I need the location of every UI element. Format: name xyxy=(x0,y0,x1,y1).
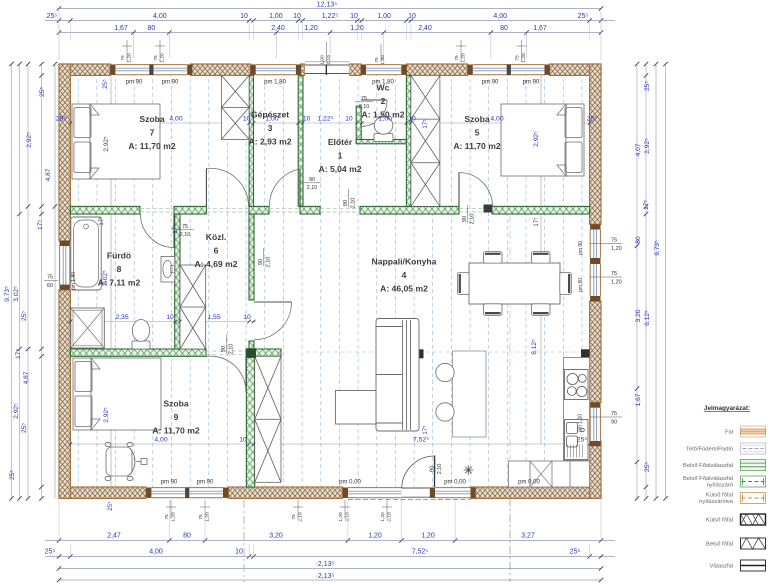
svg-text:2,92⁵: 2,92⁵ xyxy=(644,138,651,154)
svg-text:2,10: 2,10 xyxy=(351,198,357,209)
svg-text:A: 2,93 m2: A: 2,93 m2 xyxy=(249,137,292,147)
svg-text:A: 4,69 m2: A: 4,69 m2 xyxy=(195,259,238,269)
svg-text:25⁵: 25⁵ xyxy=(107,501,114,511)
svg-text:1,00: 1,00 xyxy=(320,55,326,65)
svg-text:1,55: 1,55 xyxy=(207,314,220,321)
svg-text:3,20: 3,20 xyxy=(635,309,642,322)
svg-text:25⁵: 25⁵ xyxy=(21,311,28,321)
svg-text:25⁵: 25⁵ xyxy=(39,87,46,97)
svg-text:A: 11,70 m2: A: 11,70 m2 xyxy=(152,426,200,436)
svg-text:pm 90: pm 90 xyxy=(578,278,584,292)
svg-text:2,35: 2,35 xyxy=(115,314,128,321)
svg-text:17⁵: 17⁵ xyxy=(172,224,179,234)
svg-text:1,00: 1,00 xyxy=(379,116,392,123)
svg-text:25⁵: 25⁵ xyxy=(587,116,598,123)
svg-text:2,92⁵: 2,92⁵ xyxy=(103,136,110,152)
svg-text:75: 75 xyxy=(374,57,380,63)
svg-text:10: 10 xyxy=(408,13,416,20)
svg-text:3: 3 xyxy=(268,123,273,133)
svg-text:2,10: 2,10 xyxy=(180,232,191,238)
svg-text:3,20: 3,20 xyxy=(269,533,283,540)
svg-text:17⁵: 17⁵ xyxy=(422,425,429,435)
svg-text:25⁵: 25⁵ xyxy=(644,462,651,472)
svg-text:25⁵: 25⁵ xyxy=(56,116,67,123)
svg-text:75: 75 xyxy=(361,96,367,102)
svg-text:Belső Főalválaszfal: Belső Főalválaszfal xyxy=(683,476,733,482)
svg-text:75: 75 xyxy=(182,224,188,230)
svg-text:4,00: 4,00 xyxy=(153,13,167,20)
svg-text:nyílászáróiva: nyílászáróiva xyxy=(699,499,734,505)
svg-text:pm 0,00: pm 0,00 xyxy=(518,480,540,486)
svg-text:pm 1,80: pm 1,80 xyxy=(264,80,286,86)
svg-text:pm 90: pm 90 xyxy=(197,480,214,486)
svg-text:pm 90: pm 90 xyxy=(162,80,179,86)
svg-text:6,12⁵: 6,12⁵ xyxy=(531,339,538,355)
svg-text:A: 46,05 m2: A: 46,05 m2 xyxy=(380,284,428,294)
svg-text:75: 75 xyxy=(47,275,53,281)
svg-text:90: 90 xyxy=(258,259,264,265)
svg-text:10: 10 xyxy=(166,314,174,321)
svg-text:pm 90: pm 90 xyxy=(482,80,499,86)
svg-text:25⁵: 25⁵ xyxy=(570,549,581,556)
svg-text:pm 0,00: pm 0,00 xyxy=(339,480,361,486)
svg-text:4,00: 4,00 xyxy=(149,549,163,556)
svg-text:3,02⁵: 3,02⁵ xyxy=(102,270,109,286)
svg-text:25⁵: 25⁵ xyxy=(21,423,28,433)
svg-text:1,00: 1,00 xyxy=(269,13,283,20)
svg-text:80: 80 xyxy=(148,25,156,32)
svg-text:2,10: 2,10 xyxy=(229,344,235,355)
svg-text:A: 11,70 m2: A: 11,70 m2 xyxy=(453,141,501,151)
svg-text:17⁵: 17⁵ xyxy=(643,200,650,210)
svg-text:A: 11,70 m2: A: 11,70 m2 xyxy=(128,141,176,151)
svg-text:25⁵: 25⁵ xyxy=(9,470,16,480)
svg-text:Tető/Födém/Padló: Tető/Födém/Padló xyxy=(686,447,733,453)
svg-text:75: 75 xyxy=(611,238,617,244)
svg-text:·2,13⁵: ·2,13⁵ xyxy=(316,573,335,580)
svg-text:75: 75 xyxy=(515,55,521,61)
svg-text:Válaszfal: Válaszfal xyxy=(709,564,733,570)
svg-text:3,27: 3,27 xyxy=(521,533,535,540)
svg-text:2,92⁵: 2,92⁵ xyxy=(533,131,540,147)
svg-text:75: 75 xyxy=(454,55,460,61)
svg-text:90: 90 xyxy=(309,177,315,183)
svg-text:nyílászáró: nyílászáró xyxy=(707,483,733,489)
svg-text:1,20: 1,20 xyxy=(421,533,435,540)
svg-text:10: 10 xyxy=(350,13,358,20)
svg-text:25⁵: 25⁵ xyxy=(577,437,588,444)
svg-text:2,92⁵: 2,92⁵ xyxy=(13,403,20,419)
svg-text:1,67: 1,67 xyxy=(533,25,547,32)
svg-text:2,92⁵: 2,92⁵ xyxy=(26,132,33,148)
svg-text:1,20: 1,20 xyxy=(338,512,344,522)
svg-text:9,73⁵: 9,73⁵ xyxy=(4,286,11,302)
svg-text:1,20: 1,20 xyxy=(304,25,318,32)
svg-text:90: 90 xyxy=(221,346,227,352)
svg-text:7: 7 xyxy=(150,128,155,138)
svg-text:2,92⁵: 2,92⁵ xyxy=(103,407,110,423)
svg-text:75: 75 xyxy=(611,271,617,277)
svg-text:1: 1 xyxy=(338,151,343,161)
svg-text:10: 10 xyxy=(243,116,251,123)
svg-text:2,47: 2,47 xyxy=(107,533,121,540)
svg-text:6: 6 xyxy=(214,246,219,256)
svg-text:1,20: 1,20 xyxy=(380,512,386,522)
svg-text:25⁵: 25⁵ xyxy=(45,549,56,556)
svg-text:9,73⁵: 9,73⁵ xyxy=(654,240,661,256)
svg-text:25⁵: 25⁵ xyxy=(47,13,58,20)
svg-text:4,00: 4,00 xyxy=(169,116,182,123)
svg-text:75: 75 xyxy=(120,55,126,61)
svg-text:Szoba: Szoba xyxy=(464,114,490,124)
svg-text:8: 8 xyxy=(117,264,122,274)
svg-text:Belső Főalválaszfal: Belső Főalválaszfal xyxy=(683,463,733,469)
svg-text:4,00: 4,00 xyxy=(493,13,507,20)
svg-text:Külső főfal: Külső főfal xyxy=(706,493,733,499)
svg-text:90: 90 xyxy=(343,200,349,206)
svg-text:4,00: 4,00 xyxy=(154,437,167,444)
svg-text:75: 75 xyxy=(153,55,159,61)
svg-text:1,22⁵: 1,22⁵ xyxy=(322,13,339,20)
svg-text:2: 2 xyxy=(381,96,386,106)
svg-text:10: 10 xyxy=(293,13,301,20)
svg-text:1,00: 1,00 xyxy=(377,13,391,20)
svg-text:17⁵: 17⁵ xyxy=(15,349,22,359)
svg-text:4: 4 xyxy=(402,270,407,280)
svg-text:1,67: 1,67 xyxy=(114,25,128,32)
svg-text:Fürdö: Fürdö xyxy=(107,251,131,261)
svg-text:A: 5,04 m2: A: 5,04 m2 xyxy=(319,164,362,174)
svg-text:pm 0,00: pm 0,00 xyxy=(444,480,466,486)
svg-text:17⁵: 17⁵ xyxy=(98,216,105,226)
svg-text:pm 90: pm 90 xyxy=(523,80,540,86)
svg-text:5: 5 xyxy=(475,128,480,138)
svg-text:10: 10 xyxy=(240,13,248,20)
svg-text:90: 90 xyxy=(611,420,617,426)
svg-text:pm 90: pm 90 xyxy=(161,480,178,486)
svg-text:60: 60 xyxy=(47,283,53,289)
svg-text:2,10: 2,10 xyxy=(266,257,272,268)
svg-text:10: 10 xyxy=(235,549,243,556)
svg-text:75: 75 xyxy=(198,514,204,520)
svg-text:10: 10 xyxy=(243,314,251,321)
svg-text:4,00: 4,00 xyxy=(490,116,503,123)
svg-text:25⁵: 25⁵ xyxy=(578,13,589,20)
svg-text:Nappali/Konyha: Nappali/Konyha xyxy=(372,257,437,267)
svg-text:Közl.: Közl. xyxy=(206,232,227,242)
svg-text:1,67: 1,67 xyxy=(635,393,642,406)
svg-text:Jelmagyarázat:: Jelmagyarázat: xyxy=(704,405,750,412)
svg-text:2,10: 2,10 xyxy=(470,214,476,225)
svg-text:2,10: 2,10 xyxy=(437,464,443,475)
svg-text:Külső főfal: Külső főfal xyxy=(706,518,733,524)
svg-text:80: 80 xyxy=(183,533,191,540)
svg-text:1,20: 1,20 xyxy=(611,280,622,286)
svg-text:4,07: 4,07 xyxy=(635,143,642,156)
svg-text:90: 90 xyxy=(430,466,436,472)
svg-text:Előtér: Előtér xyxy=(328,137,353,147)
svg-text:4,87: 4,87 xyxy=(23,371,30,384)
svg-text:17⁵: 17⁵ xyxy=(422,119,429,129)
svg-text:1,20: 1,20 xyxy=(368,533,382,540)
svg-text:pm 90: pm 90 xyxy=(578,241,584,255)
svg-text:·2,13⁵: ·2,13⁵ xyxy=(316,561,335,568)
svg-text:3,02⁵: 3,02⁵ xyxy=(13,286,20,302)
svg-text:90: 90 xyxy=(462,216,468,222)
svg-text:7,52⁵: 7,52⁵ xyxy=(413,437,429,444)
svg-text:Szoba: Szoba xyxy=(163,399,189,409)
svg-text:1,00: 1,00 xyxy=(265,116,278,123)
svg-text:2,10: 2,10 xyxy=(326,55,332,65)
svg-text:Fal: Fal xyxy=(725,430,733,436)
svg-text:12,13⁵: 12,13⁵ xyxy=(317,2,338,9)
svg-text:80: 80 xyxy=(500,25,508,32)
svg-text:17⁵: 17⁵ xyxy=(533,217,540,227)
svg-text:Szoba: Szoba xyxy=(139,114,165,124)
svg-text:10: 10 xyxy=(345,116,353,123)
svg-text:6,12⁵: 6,12⁵ xyxy=(644,310,651,326)
svg-text:75: 75 xyxy=(611,411,617,417)
svg-text:25⁵: 25⁵ xyxy=(644,81,651,91)
svg-text:2,10: 2,10 xyxy=(307,185,318,191)
svg-text:17⁵: 17⁵ xyxy=(37,220,44,230)
svg-text:2,40: 2,40 xyxy=(418,25,432,32)
svg-text:1,20: 1,20 xyxy=(611,246,622,252)
svg-text:2,40: 2,40 xyxy=(271,25,285,32)
svg-text:pm 1,10: pm 1,10 xyxy=(578,414,584,432)
svg-text:1,22⁵: 1,22⁵ xyxy=(317,116,333,123)
svg-text:pm 1,80: pm 1,80 xyxy=(71,272,77,290)
svg-text:75: 75 xyxy=(291,514,297,520)
svg-text:25⁵: 25⁵ xyxy=(102,79,109,89)
svg-text:4,87: 4,87 xyxy=(45,168,52,181)
svg-text:pm 90: pm 90 xyxy=(126,80,143,86)
svg-text:9: 9 xyxy=(174,412,179,422)
svg-text:2,10: 2,10 xyxy=(359,104,370,110)
svg-text:7,52⁵: 7,52⁵ xyxy=(412,549,429,556)
svg-text:Belső főfal: Belső főfal xyxy=(706,542,733,548)
svg-text:10: 10 xyxy=(239,437,247,444)
svg-text:80: 80 xyxy=(635,236,642,244)
svg-text:pm 1,80: pm 1,80 xyxy=(372,80,394,86)
